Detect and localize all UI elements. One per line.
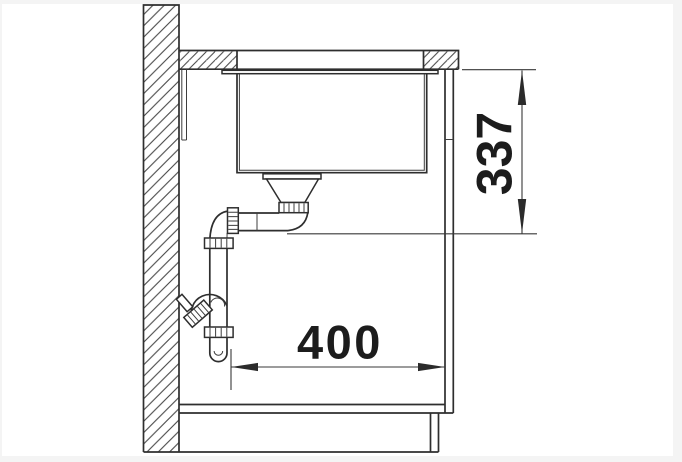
sink-rim-flange [222, 70, 438, 73]
countertop-left-section [179, 51, 237, 70]
sink-installation-diagram: 337 400 [0, 0, 682, 462]
upper-union-nut [205, 238, 234, 248]
countertop-right-section [424, 51, 459, 70]
width-dimension-label: 400 [297, 316, 383, 369]
height-dimension-label: 337 [467, 112, 523, 195]
strainer-flange [263, 174, 321, 179]
technical-drawing: 337 400 [0, 0, 682, 462]
wall-hatching [144, 5, 180, 452]
corner-coupling-nut [228, 208, 239, 234]
trap-union-nut [205, 327, 234, 337]
wall-section [144, 5, 180, 452]
strainer-locknut [279, 203, 308, 213]
